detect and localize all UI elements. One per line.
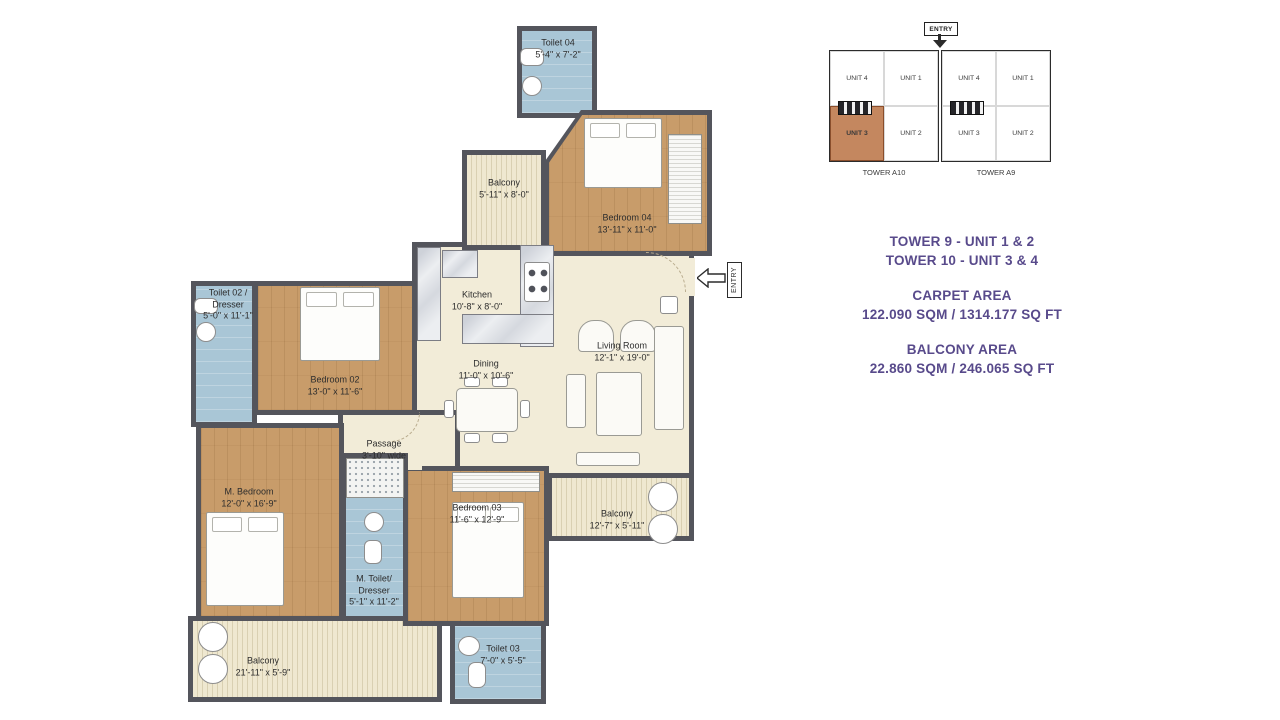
balcony-chair bbox=[648, 514, 678, 544]
dining-table bbox=[456, 388, 518, 432]
key-plan-tower-a10: UNIT 4 UNIT 1 UNIT 3 UNIT 2 bbox=[829, 50, 939, 162]
single-seat bbox=[566, 374, 586, 428]
key-plan-tower-a9: UNIT 4 UNIT 1 UNIT 3 UNIT 2 bbox=[941, 50, 1051, 162]
room-label-balcony-bottom: Balcony21'-11" x 5'-9" bbox=[236, 655, 291, 678]
wardrobe-bedroom-04 bbox=[668, 134, 702, 224]
key-plan-unit: UNIT 4 bbox=[942, 51, 996, 106]
key-plan: ENTRY UNIT 4 UNIT 1 UNIT 3 UNIT 2 UNIT 4… bbox=[828, 22, 1054, 192]
balcony-chair bbox=[198, 622, 228, 652]
key-plan-entry-arrowhead-icon bbox=[933, 40, 947, 48]
dining-chair bbox=[464, 433, 480, 443]
room-label-living-room: Living Room12'-1" x 19'-0" bbox=[594, 340, 649, 363]
tower-unit-line-1: TOWER 9 - UNIT 1 & 2 bbox=[845, 232, 1079, 251]
room-label-balcony-top: Balcony5'-11" x 8'-0" bbox=[479, 177, 529, 200]
room-label-kitchen: Kitchen10'-8" x 8'-0" bbox=[452, 289, 502, 312]
coffee-table bbox=[596, 372, 642, 436]
key-plan-unit: UNIT 1 bbox=[884, 51, 938, 106]
floor-plan-page: ENTRY Toilet 045'-4" x 7'-2" Balcony5'-1… bbox=[0, 0, 1280, 720]
bed-bedroom-04 bbox=[584, 118, 662, 188]
balcony-chair bbox=[648, 482, 678, 512]
entry-door-opening bbox=[688, 258, 695, 296]
room-label-bedroom-03: Bedroom 0311'-6" x 12'-9" bbox=[450, 502, 505, 525]
room-label-toilet-04: Toilet 045'-4" x 7'-2" bbox=[535, 37, 580, 60]
basin-fixture bbox=[364, 512, 384, 532]
balcony-area-value: 22.860 SQM / 246.065 SQ FT bbox=[845, 359, 1079, 378]
room-label-bedroom-02: Bedroom 0213'-0" x 11'-6" bbox=[308, 374, 363, 397]
basin-fixture bbox=[196, 322, 216, 342]
room-label-m-toilet: M. Toilet/ Dresser5'-1" x 11'-2" bbox=[343, 573, 405, 608]
room-label-bedroom-04: Bedroom 0413'-11" x 11'-0" bbox=[597, 212, 656, 235]
tower-unit-line-2: TOWER 10 - UNIT 3 & 4 bbox=[845, 251, 1079, 270]
room-label-dining: Dining11'-0" x 10'-6" bbox=[459, 358, 514, 381]
key-plan-unit: UNIT 4 bbox=[830, 51, 884, 106]
tv-unit bbox=[576, 452, 640, 466]
entry-arrow-icon bbox=[697, 268, 727, 288]
key-plan-core-icon bbox=[950, 101, 984, 115]
balcony-area-label: BALCONY AREA bbox=[845, 340, 1079, 359]
room-label-toilet-02: Toilet 02 / Dresser5'-0" x 11'-1" bbox=[197, 287, 259, 322]
key-plan-core-icon bbox=[838, 101, 872, 115]
wc-fixture bbox=[364, 540, 382, 564]
stove-icon bbox=[524, 262, 550, 302]
balcony-chair bbox=[198, 654, 228, 684]
carpet-area-label: CARPET AREA bbox=[845, 286, 1079, 305]
dining-chair bbox=[492, 433, 508, 443]
basin-fixture bbox=[522, 76, 542, 96]
kitchen-counter-bottom bbox=[462, 314, 554, 344]
wardrobe-bedroom-03 bbox=[452, 472, 540, 492]
room-label-m-bedroom: M. Bedroom12'-0" x 16'-9" bbox=[221, 486, 276, 509]
kitchen-counter-left bbox=[417, 247, 441, 341]
bed-bedroom-02 bbox=[300, 287, 380, 361]
dresser-m-toilet bbox=[346, 458, 404, 498]
key-plan-unit: UNIT 2 bbox=[996, 106, 1050, 161]
entry-label: ENTRY bbox=[727, 262, 742, 298]
kitchen-sink-counter bbox=[442, 250, 478, 278]
room-label-passage: Passage3'-10" wide bbox=[362, 438, 406, 461]
bed-m-bedroom bbox=[206, 512, 284, 606]
room-label-balcony-right: Balcony12'-7" x 5'-11" bbox=[590, 508, 645, 531]
key-plan-tower-a9-label: TOWER A9 bbox=[941, 168, 1051, 177]
carpet-area-value: 122.090 SQM / 1314.177 SQ FT bbox=[845, 305, 1079, 324]
room-label-toilet-03: Toilet 037'-0" x 5'-5" bbox=[480, 643, 525, 666]
info-panel: TOWER 9 - UNIT 1 & 2 TOWER 10 - UNIT 3 &… bbox=[845, 232, 1079, 378]
side-table bbox=[660, 296, 678, 314]
key-plan-tower-a10-label: TOWER A10 bbox=[829, 168, 939, 177]
floor-plan: ENTRY Toilet 045'-4" x 7'-2" Balcony5'-1… bbox=[0, 0, 760, 720]
dining-chair bbox=[444, 400, 454, 418]
key-plan-unit: UNIT 1 bbox=[996, 51, 1050, 106]
key-plan-entry-label: ENTRY bbox=[924, 22, 958, 36]
dining-chair bbox=[520, 400, 530, 418]
key-plan-unit: UNIT 2 bbox=[884, 106, 938, 161]
sofa-right bbox=[654, 326, 684, 430]
basin-fixture bbox=[458, 636, 480, 656]
